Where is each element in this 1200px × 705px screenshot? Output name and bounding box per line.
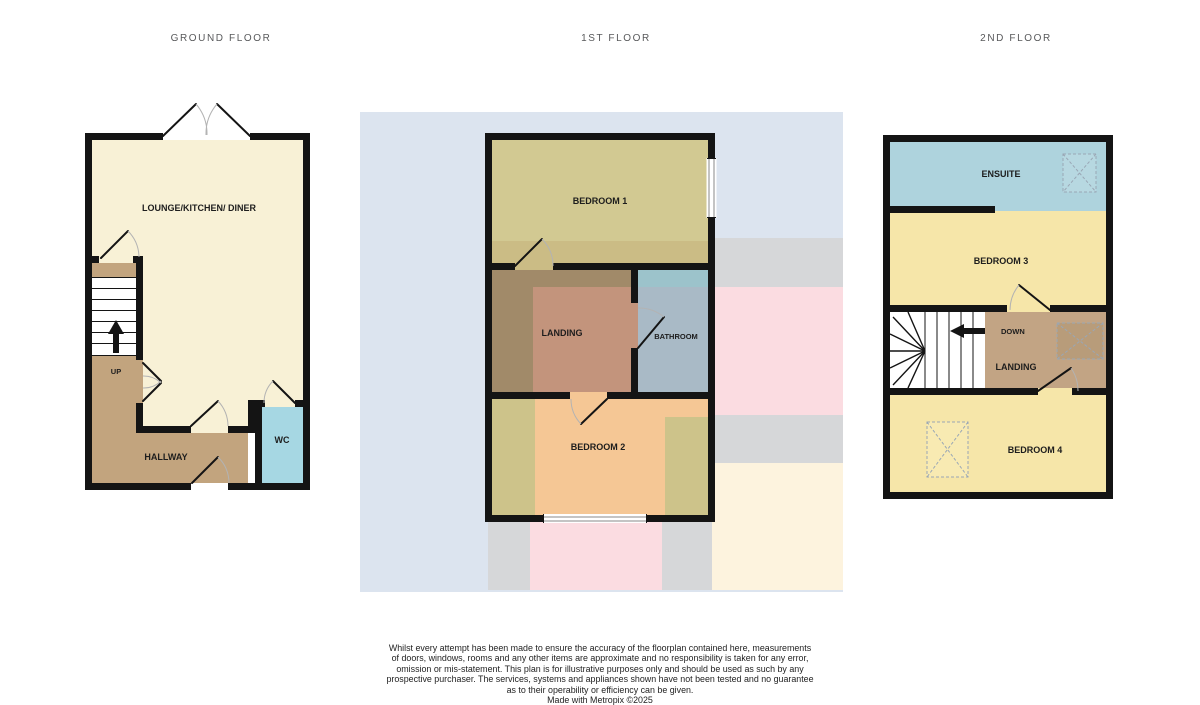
ghost-rect <box>715 287 843 415</box>
door-threshold <box>1038 388 1072 395</box>
up-label: UP <box>111 367 121 376</box>
bedroom4-skylight <box>927 422 968 477</box>
ground-floor-plan: LOUNGE/KITCHEN/ DINER UP HALLWAY WC <box>85 104 310 490</box>
bedroom1-label: BEDROOM 1 <box>573 196 628 206</box>
door-threshold <box>136 360 143 403</box>
room-bedroom1-band <box>492 241 708 263</box>
room-wc <box>262 407 303 483</box>
ensuite-shower <box>1063 154 1096 192</box>
ghost-rect <box>662 522 712 590</box>
ghost-rect <box>715 238 843 287</box>
floorplan-page: GROUND FLOOR 1ST FLOOR 2ND FLOOR <box>0 0 1200 705</box>
room-bathroom <box>638 270 708 392</box>
disclaimer-line: as to their operability or efficiency ca… <box>0 685 1200 695</box>
ghost-rect <box>488 522 530 590</box>
bedroom2-window <box>543 514 647 523</box>
first-floor-plan: BEDROOM 1 LANDING BATHROOM BEDROOM 2 <box>485 133 717 523</box>
room-bedroom2-overlay <box>665 417 708 515</box>
disclaimer-line: of doors, windows, rooms and any other i… <box>0 653 1200 663</box>
bedroom1-window <box>707 158 717 218</box>
door-threshold <box>631 303 638 348</box>
ground-floor-title: GROUND FLOOR <box>171 33 272 44</box>
ghost-rect <box>715 415 843 463</box>
bedroom3-label: BEDROOM 3 <box>974 256 1029 266</box>
second-floor-title: 2ND FLOOR <box>980 33 1052 44</box>
room-landing-overlay <box>533 287 631 392</box>
landing2-label: LANDING <box>996 362 1037 372</box>
door-threshold <box>515 263 553 270</box>
door-threshold <box>99 256 133 263</box>
door-threshold <box>265 400 295 407</box>
landing1-label: LANDING <box>542 328 583 338</box>
wc-label: WC <box>275 435 290 445</box>
ensuite-label: ENSUITE <box>981 169 1020 179</box>
disclaimer-line: prospective purchaser. The services, sys… <box>0 674 1200 684</box>
lounge-label: LOUNGE/KITCHEN/ DINER <box>142 203 257 213</box>
room-bedroom4 <box>890 395 1106 492</box>
disclaimer-line: Whilst every attempt has been made to en… <box>0 643 1200 653</box>
second-floor-plan: ENSUITE BEDROOM 3 DOWN LANDING BEDROOM 4 <box>883 135 1113 499</box>
door-threshold <box>570 392 607 399</box>
french-doors <box>163 104 250 136</box>
first-floor-title: 1ST FLOOR <box>581 33 651 44</box>
ground-staircase <box>92 277 136 356</box>
bedroom2-label: BEDROOM 2 <box>571 442 626 452</box>
disclaimer-text: Whilst every attempt has been made to en… <box>0 643 1200 705</box>
door-threshold <box>191 426 228 433</box>
disclaimer-line: omission or mis-statement. This plan is … <box>0 664 1200 674</box>
bedroom4-label: BEDROOM 4 <box>1008 445 1063 455</box>
down-label: DOWN <box>1001 327 1025 336</box>
room-bedroom2-overlay <box>492 399 535 515</box>
landing-skylight <box>1057 323 1103 359</box>
ghost-rect <box>712 463 843 590</box>
ghost-rect <box>530 522 662 590</box>
floorplan-canvas: GROUND FLOOR 1ST FLOOR 2ND FLOOR <box>0 0 1200 705</box>
bathroom-label: BATHROOM <box>654 332 698 341</box>
room-bathroom-band <box>638 270 708 287</box>
hallway-label: HALLWAY <box>144 452 187 462</box>
second-staircase <box>890 312 985 388</box>
disclaimer-credit: Made with Metropix ©2025 <box>0 695 1200 705</box>
